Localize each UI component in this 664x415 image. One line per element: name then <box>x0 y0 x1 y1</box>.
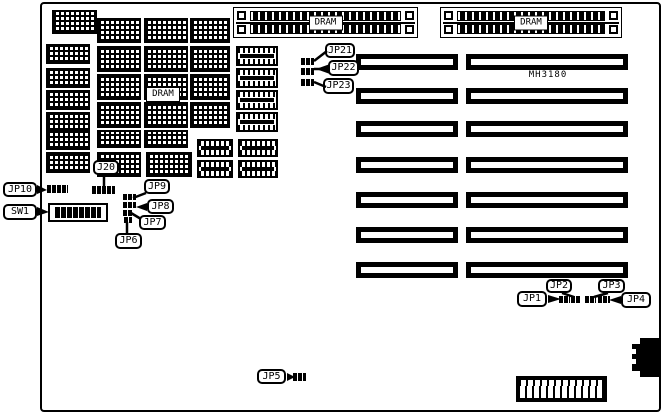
dip-chip <box>236 112 278 132</box>
chipset-label: MH3180 <box>516 70 580 82</box>
chip-pin-row <box>238 114 276 119</box>
isa-slot-segment <box>356 227 458 243</box>
isa-slot-segment <box>466 121 628 137</box>
isa-slot-segment <box>356 262 458 278</box>
dip-chip <box>144 18 188 43</box>
dip-chip <box>238 139 278 157</box>
simm-socket: DRAM <box>233 7 418 38</box>
simm-clip <box>609 25 618 34</box>
dip-chip <box>97 18 141 43</box>
chip-pin-row <box>238 103 276 108</box>
jumper-pin-block <box>571 296 581 303</box>
chip-pin-row <box>199 171 231 176</box>
callout-j20: J20 <box>93 160 119 175</box>
jumper-pin-block <box>47 185 68 193</box>
simm-clip <box>444 25 453 34</box>
simm-dram-label: DRAM <box>309 15 343 30</box>
keyboard-connector-notch <box>632 359 636 364</box>
jumper-pin-block <box>301 68 314 75</box>
chip-pin-row <box>238 70 276 75</box>
callout-jp3: JP3 <box>598 279 625 293</box>
isa-slot-segment <box>466 54 628 70</box>
motherboard-diagram: DRAM MH3180 DRAMDRAMJP10SW1J20JP9JP8JP7J… <box>0 0 664 415</box>
dip-chip <box>190 18 230 43</box>
callout-jp4: JP4 <box>621 292 651 308</box>
power-connector <box>516 376 607 402</box>
chip-body-bar <box>240 76 274 80</box>
simm-clip <box>237 11 246 20</box>
jumper-pin-block <box>123 210 133 216</box>
isa-slot-segment <box>466 157 628 173</box>
dram-field-label: DRAM <box>146 87 180 102</box>
isa-slot-segment <box>466 192 628 208</box>
chip-pin-row <box>238 125 276 130</box>
isa-slot-segment <box>356 157 458 173</box>
chip-body-bar <box>201 146 229 150</box>
jumper-pin-block <box>301 58 314 65</box>
chip-body-bar <box>242 167 274 171</box>
dip-chip <box>190 46 230 72</box>
callout-jp5: JP5 <box>257 369 286 384</box>
chip-pin-row <box>240 171 276 176</box>
dip-chip <box>46 112 90 132</box>
dip-chip <box>144 102 188 128</box>
dip-chip <box>97 74 141 100</box>
chip-body-bar <box>201 167 229 171</box>
dip-chip <box>236 68 278 88</box>
isa-slot-segment <box>356 192 458 208</box>
jumper-pin-block <box>598 296 610 303</box>
isa-slot-segment <box>356 54 458 70</box>
chip-pin-row <box>199 150 231 155</box>
simm-socket: DRAM <box>440 7 622 38</box>
dip-chip <box>46 68 90 88</box>
callout-jp10: JP10 <box>3 182 37 197</box>
chip-pin-row <box>238 81 276 86</box>
callout-jp2: JP2 <box>546 279 572 293</box>
callout-jp21: JP21 <box>325 43 355 58</box>
simm-clip <box>405 25 414 34</box>
simm-clip <box>609 11 618 20</box>
chip-body-bar <box>242 146 274 150</box>
callout-jp22: JP22 <box>328 60 359 76</box>
callout-jp6: JP6 <box>115 233 142 249</box>
callout-jp23: JP23 <box>323 78 354 94</box>
isa-slot-segment <box>356 88 458 104</box>
dip-chip <box>236 90 278 110</box>
jumper-pin-block <box>585 296 596 303</box>
dip-chip <box>52 10 97 34</box>
jumper-pin-block <box>293 373 306 381</box>
dip-chip <box>197 139 233 157</box>
chip-pin-row <box>238 92 276 97</box>
callout-jp1: JP1 <box>517 291 547 307</box>
jumper-pin-block <box>301 79 314 86</box>
chip-body-bar <box>240 98 274 102</box>
chip-pin-row <box>238 59 276 64</box>
keyboard-connector-notch <box>632 349 636 354</box>
isa-slot-segment <box>466 88 628 104</box>
dip-chip <box>97 46 141 72</box>
power-connector-teeth <box>520 386 603 398</box>
dip-chip <box>146 152 192 177</box>
jumper-pin-block <box>92 186 115 194</box>
chip-pin-row <box>238 48 276 53</box>
dip-chip <box>238 160 278 178</box>
chip-pin-row <box>240 150 276 155</box>
dip-chip <box>97 102 141 128</box>
simm-dram-label: DRAM <box>514 15 548 30</box>
callout-jp9: JP9 <box>144 179 170 194</box>
jumper-pin-block <box>123 202 136 208</box>
chip-body-bar <box>240 54 274 58</box>
dip-chip <box>46 131 90 150</box>
dip-chip <box>236 46 278 66</box>
isa-slot-segment <box>466 227 628 243</box>
callout-jp7: JP7 <box>139 215 166 230</box>
dip-chip <box>46 90 90 110</box>
jumper-pin-block <box>123 194 136 200</box>
dip-switch-sw1-segments <box>55 207 101 218</box>
dip-chip <box>144 130 188 148</box>
simm-clip <box>237 25 246 34</box>
isa-slot-segment <box>356 121 458 137</box>
dip-chip <box>197 160 233 178</box>
isa-slot-segment <box>466 262 628 278</box>
jumper-pin-block <box>559 296 570 303</box>
jumper-pin-block <box>124 217 132 223</box>
dip-chip <box>144 46 188 72</box>
simm-clip <box>405 11 414 20</box>
callout-sw1: SW1 <box>3 204 37 220</box>
dip-chip <box>190 74 230 100</box>
dip-chip <box>46 152 90 173</box>
dip-chip <box>97 130 141 148</box>
chip-body-bar <box>240 120 274 124</box>
dip-chip <box>190 102 230 128</box>
callout-jp8: JP8 <box>147 199 174 214</box>
board-parts-layer: DRAM MH3180 DRAMDRAMJP10SW1J20JP9JP8JP7J… <box>0 0 664 415</box>
dip-chip <box>46 44 90 64</box>
keyboard-connector <box>640 338 661 377</box>
simm-clip <box>444 11 453 20</box>
